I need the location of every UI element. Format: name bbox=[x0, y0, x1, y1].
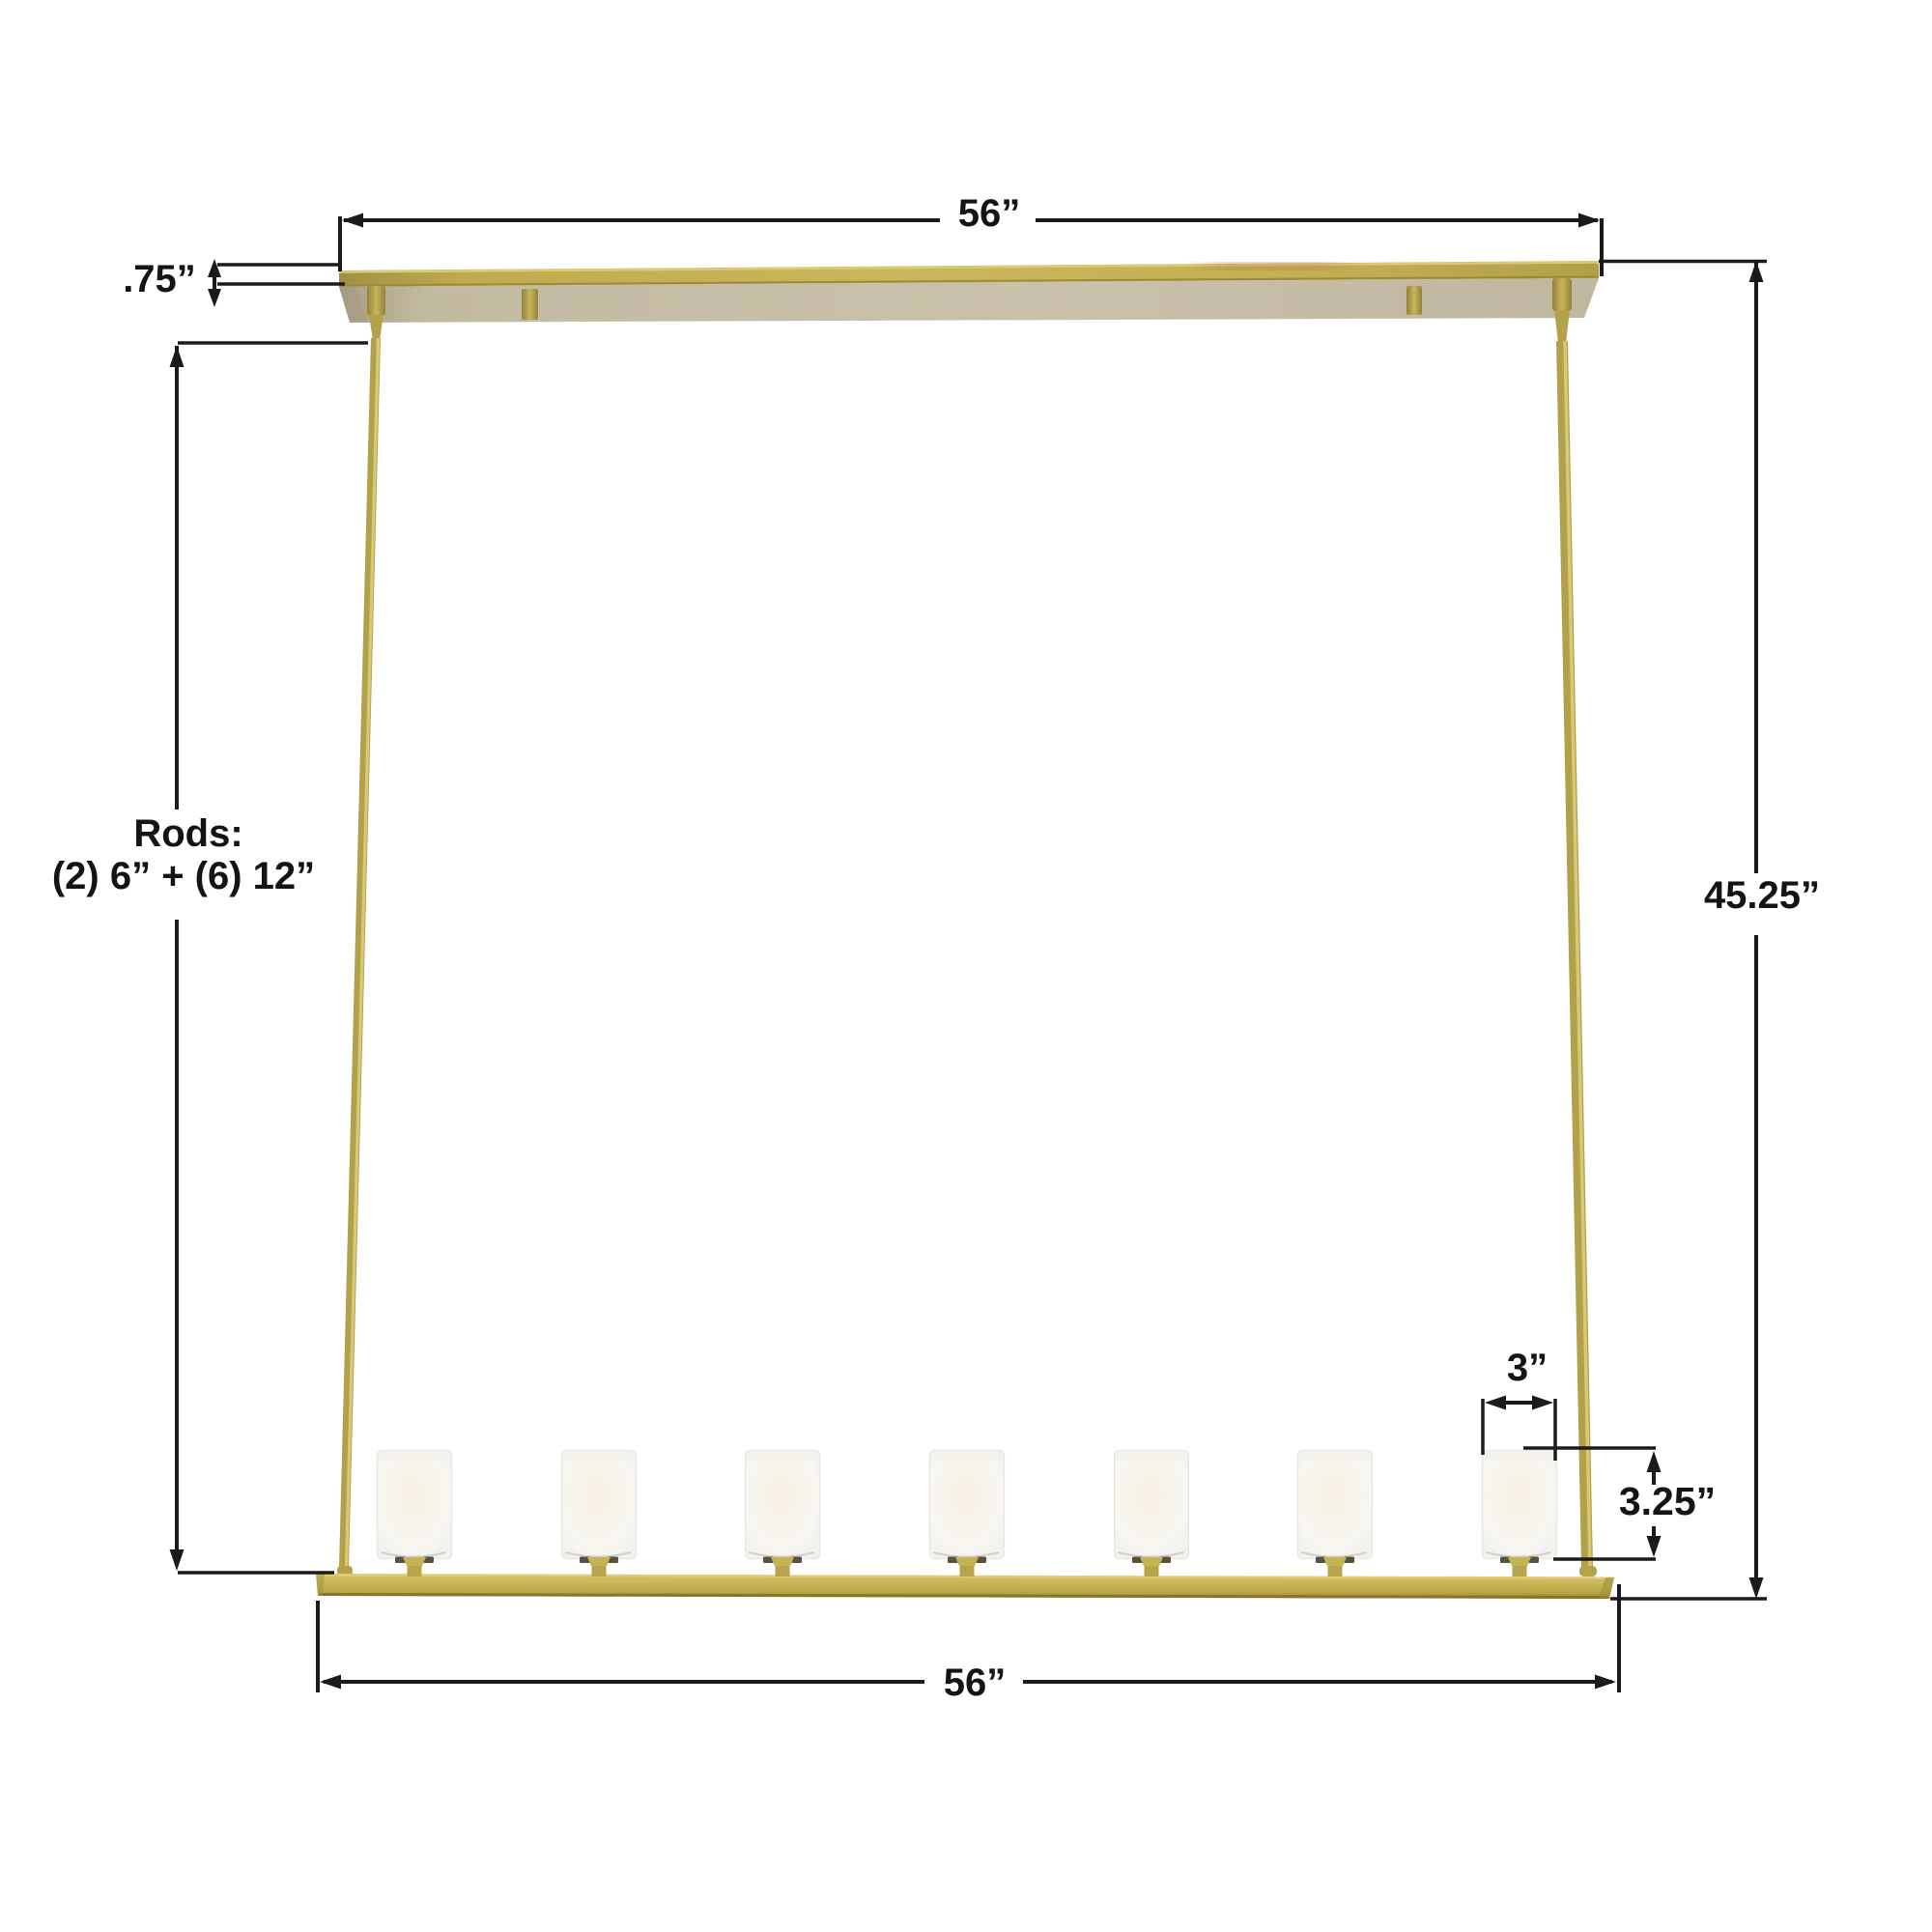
svg-text:56”: 56” bbox=[958, 192, 1021, 235]
svg-text:(2) 6” + (6) 12”: (2) 6” + (6) 12” bbox=[52, 855, 315, 897]
svg-text:3”: 3” bbox=[1507, 1347, 1548, 1389]
svg-text:Rods:: Rods: bbox=[133, 812, 242, 855]
svg-text:45.25”: 45.25” bbox=[1704, 874, 1820, 917]
svg-text:56”: 56” bbox=[944, 1662, 1007, 1704]
svg-text:.75”: .75” bbox=[123, 258, 196, 300]
svg-text:3.25”: 3.25” bbox=[1619, 1479, 1716, 1523]
